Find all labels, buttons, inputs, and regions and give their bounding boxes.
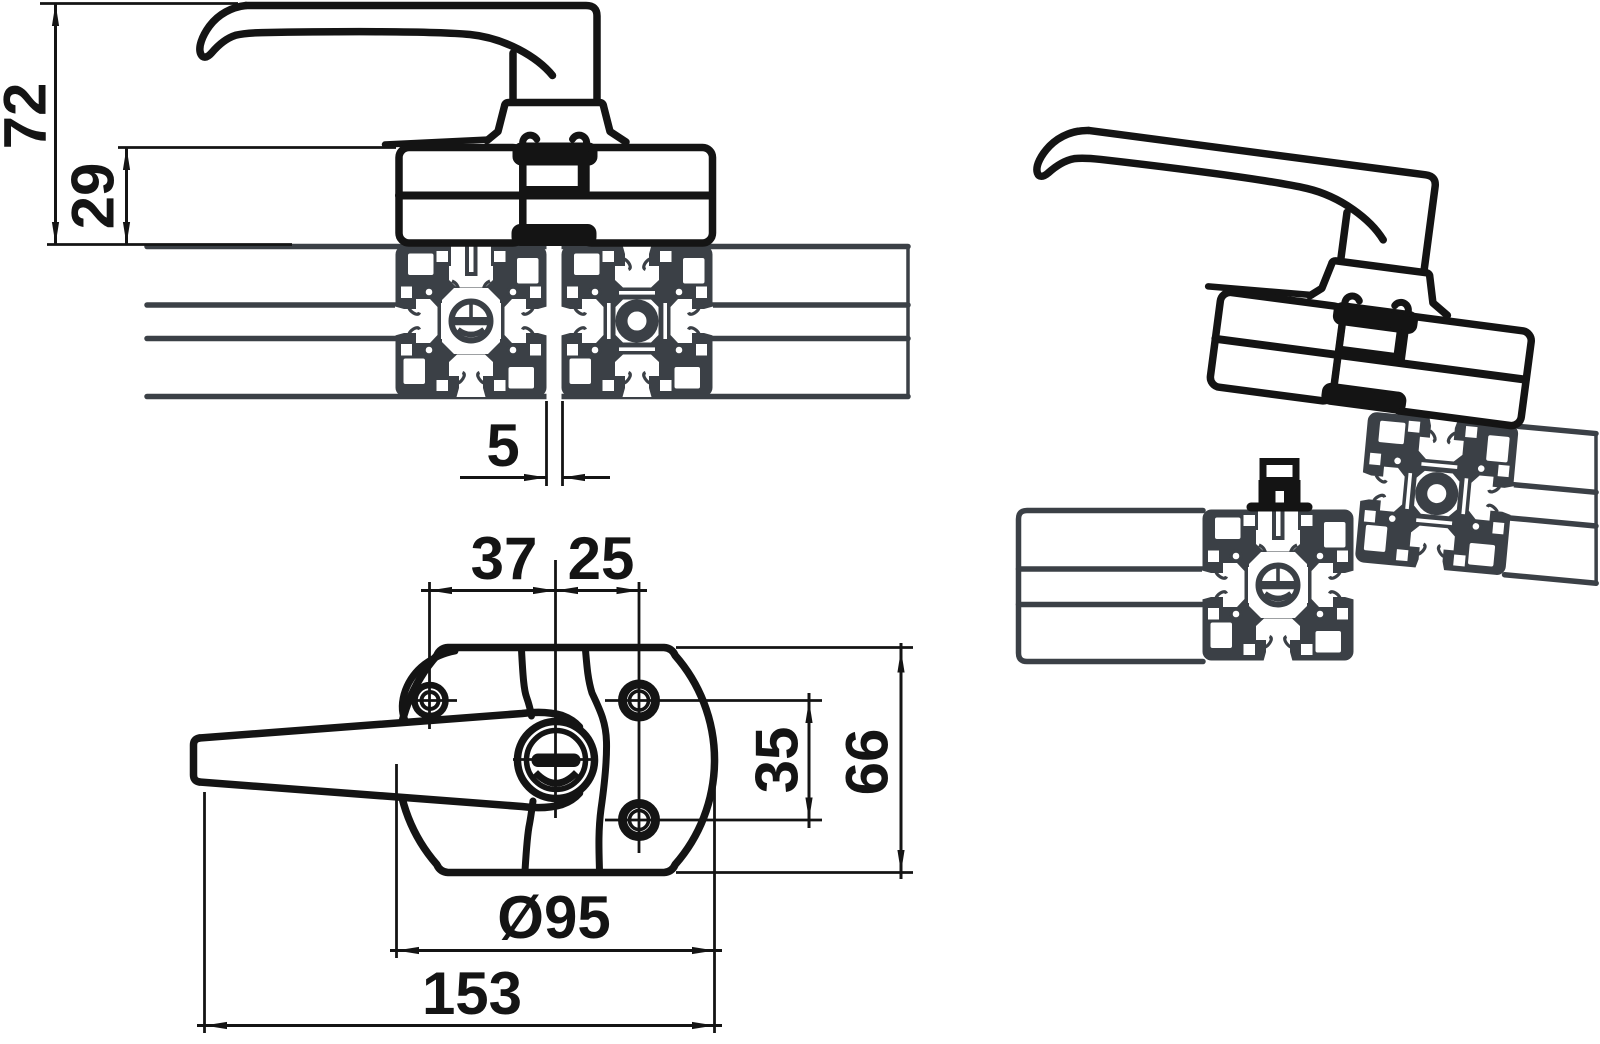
svg-text:72: 72 <box>0 83 59 150</box>
svg-text:25: 25 <box>568 525 635 592</box>
svg-text:Ø95: Ø95 <box>497 884 610 951</box>
svg-text:5: 5 <box>486 412 519 479</box>
svg-text:66: 66 <box>834 729 901 796</box>
svg-text:35: 35 <box>744 727 811 794</box>
svg-text:153: 153 <box>422 960 522 1027</box>
svg-text:37: 37 <box>471 525 538 592</box>
svg-text:29: 29 <box>60 163 127 230</box>
